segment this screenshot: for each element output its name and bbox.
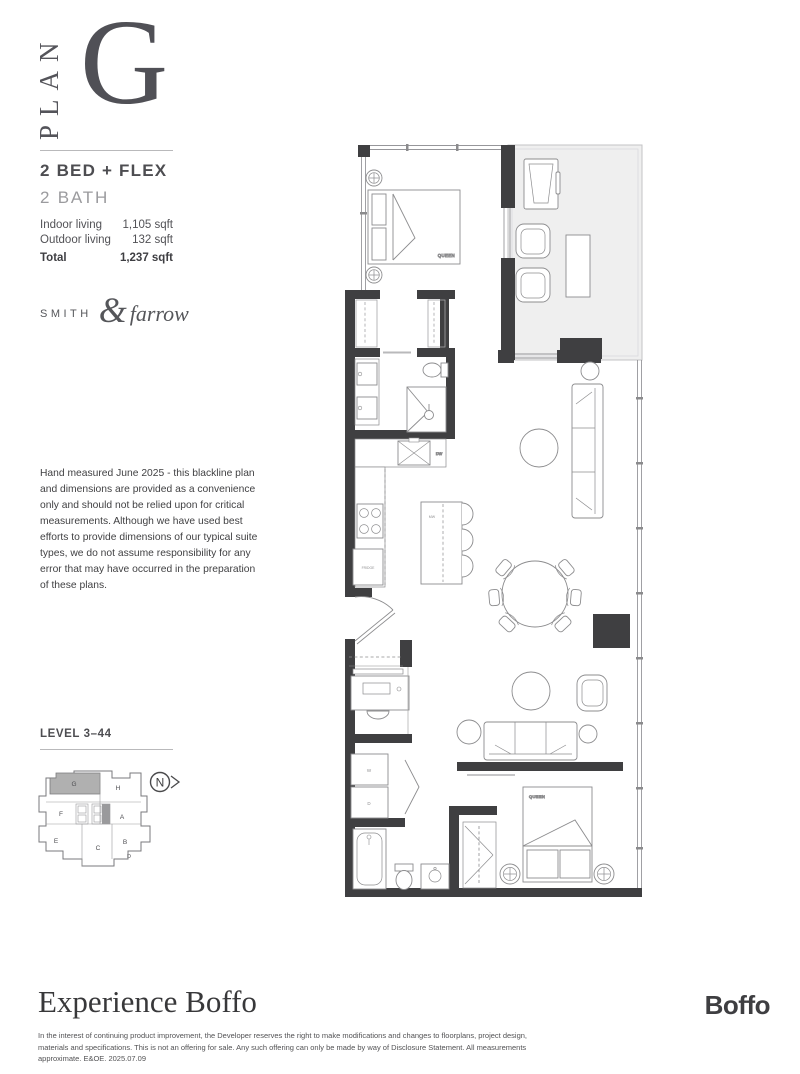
- toilet-icon: [395, 864, 413, 890]
- stat-label: Total: [40, 252, 67, 264]
- microwave-label: MW: [429, 515, 436, 519]
- ceiling-light-icon: [594, 864, 614, 884]
- keyplan-unit-d: D: [127, 854, 131, 860]
- stat-row-indoor: Indoor living 1,105 sqft: [40, 219, 173, 231]
- bed-size-label: QUEEN: [529, 794, 545, 799]
- keyplan-stair-core: [102, 804, 110, 824]
- stat-label: Outdoor living: [40, 234, 111, 246]
- unit-type-line1: 2 BED + FLEX: [40, 161, 167, 181]
- bifold-door: [405, 760, 419, 814]
- fridge-label: FRIDGE: [362, 566, 376, 570]
- svg-text:N: N: [156, 776, 165, 790]
- dining-table: [488, 558, 581, 634]
- stat-value: 132 sqft: [132, 234, 173, 246]
- bedroom2-closet: [463, 822, 496, 888]
- keyplan-unit-h: H: [116, 785, 121, 792]
- tagline: Experience Boffo: [38, 984, 257, 1020]
- side-table: [579, 725, 597, 743]
- armchair: [577, 675, 607, 711]
- stove: [357, 504, 383, 538]
- stat-label: Indoor living: [40, 219, 102, 231]
- bar-stool: [462, 555, 473, 577]
- boffo-logo: Boffo: [660, 990, 770, 1021]
- bathroom-2: [353, 829, 449, 890]
- sofa-2: [484, 722, 577, 760]
- kitchen-sink: [398, 438, 430, 465]
- unit-type-line2: 2 BATH: [40, 188, 109, 208]
- keyplan-unit-e: E: [54, 838, 59, 845]
- legal-fine-print: In the interest of continuing product im…: [38, 1030, 538, 1065]
- keyplan-unit-f: F: [59, 811, 63, 818]
- shower: [407, 387, 446, 432]
- floor-plan: QUEEN: [345, 142, 645, 897]
- desk-chair: [367, 711, 389, 719]
- living-room: [457, 362, 607, 775]
- toilet-icon: [423, 363, 448, 377]
- side-table: [581, 362, 599, 380]
- keyplan-unit-a: A: [120, 814, 125, 821]
- level-label: LEVEL 3–44: [40, 728, 112, 740]
- bar-stool: [462, 529, 473, 551]
- bed-size-label: QUEEN: [438, 253, 455, 258]
- brand-ampersand-icon: &: [99, 296, 127, 325]
- keyplan-unit-b: B: [123, 839, 127, 846]
- brand-smith-text: SMITH: [40, 308, 92, 325]
- kitchen-island: MW: [421, 502, 473, 584]
- tub-shower: [353, 829, 386, 889]
- ceiling-light-icon: [500, 864, 520, 884]
- entry: [355, 597, 395, 644]
- smith-farrow-logo: SMITH & farrow: [40, 296, 189, 325]
- sofa: [572, 384, 603, 518]
- header-divider: [40, 150, 173, 151]
- plan-word-vertical: PLAN: [34, 22, 65, 140]
- entry-door-swing: [355, 597, 393, 610]
- closets: [356, 300, 445, 353]
- bar-stool: [462, 503, 473, 525]
- area-stats: Indoor living 1,105 sqft Outdoor living …: [40, 219, 173, 267]
- laundry: W D: [351, 754, 419, 818]
- stat-row-outdoor: Outdoor living 132 sqft: [40, 234, 173, 246]
- ottoman: [512, 672, 550, 710]
- brand-farrow-text: farrow: [130, 303, 189, 325]
- keyplan-unit-c: C: [96, 845, 101, 852]
- measurement-disclaimer: Hand measured June 2025 - this blackline…: [40, 466, 258, 594]
- balcony: [508, 145, 642, 360]
- ceiling-light-icon: [366, 267, 382, 283]
- north-arrow-icon: N: [151, 773, 180, 792]
- bedroom-1: QUEEN: [366, 170, 460, 283]
- bedroom-2: QUEEN: [463, 787, 614, 888]
- side-table: [457, 720, 481, 744]
- bathroom-1: [355, 359, 448, 432]
- coffee-table: [520, 429, 558, 467]
- keyplan-unit-g: G: [71, 781, 76, 788]
- floorplan-sheet: PLAN G 2 BED + FLEX 2 BATH Indoor living…: [0, 0, 800, 1074]
- fridge: FRIDGE: [353, 549, 383, 585]
- stat-row-total: Total 1,237 sqft: [40, 252, 173, 264]
- plan-letter: G: [80, 2, 168, 124]
- keyplan: G H F A E C B D N: [36, 766, 181, 884]
- stat-value: 1,105 sqft: [122, 219, 173, 231]
- flex-room: [349, 657, 409, 734]
- keyplan-divider: [40, 749, 173, 750]
- balcony-table: [566, 235, 590, 297]
- stat-value: 1,237 sqft: [120, 252, 173, 264]
- ceiling-light-icon: [366, 170, 382, 186]
- kitchen: DW FRIDGE MW: [353, 438, 473, 587]
- sink: [421, 864, 449, 889]
- dishwasher-label: DW: [436, 452, 443, 456]
